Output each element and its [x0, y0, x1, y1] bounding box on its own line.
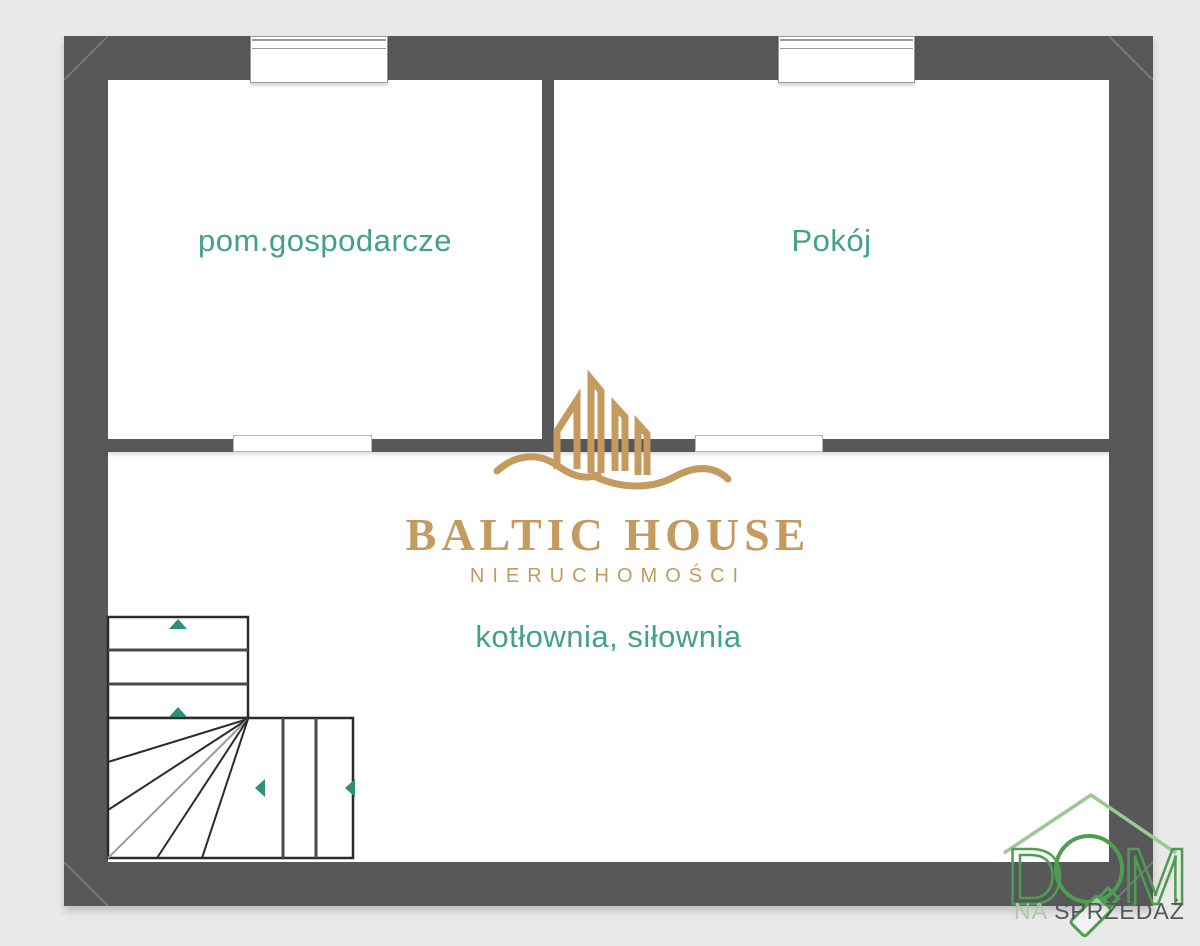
- dom-subtitle: NA SPRZEDAŻ: [1014, 898, 1194, 925]
- baltic-house-tagline: NIERUCHOMOŚCI: [308, 565, 908, 588]
- window-frame: [252, 39, 386, 49]
- room-label-pokoj: Pokój: [554, 223, 1109, 259]
- room-label-utility: pom.gospodarcze: [108, 223, 542, 259]
- baltic-house-brand-name: BALTIC HOUSE: [308, 508, 908, 561]
- door-opening: [233, 435, 372, 452]
- floor-plan: pom.gospodarcze Pokój kotłownia, siłowni…: [0, 0, 1200, 946]
- window: [778, 36, 915, 83]
- window: [250, 36, 388, 83]
- room-label-boiler: kotłownia, siłownia: [108, 619, 1109, 655]
- dom-subtitle-sprzedaz: SPRZEDAŻ: [1054, 898, 1185, 924]
- window-frame: [780, 39, 913, 49]
- baltic-house-building-icon: [480, 368, 740, 498]
- dom-subtitle-na: NA: [1014, 898, 1047, 924]
